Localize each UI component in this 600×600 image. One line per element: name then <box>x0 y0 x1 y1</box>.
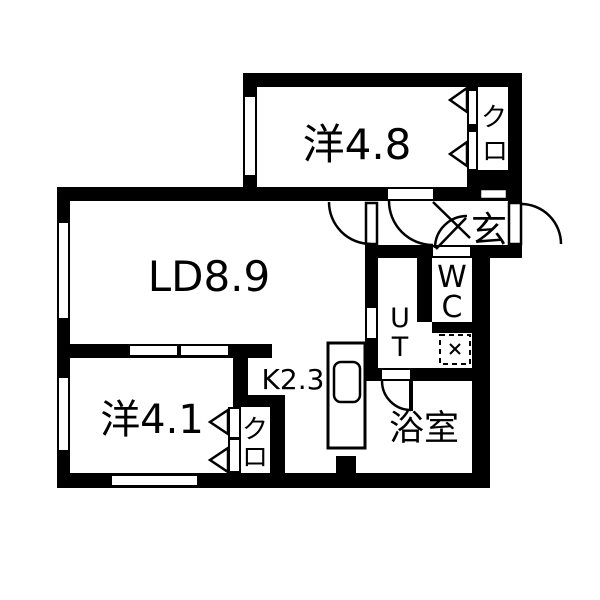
sliding-door-panel-left <box>130 346 177 355</box>
closet-bottom-arrow-lower-icon <box>210 448 228 472</box>
label-western-room-bottom: 洋4.1 <box>100 397 204 443</box>
closet-top-door-panel-a <box>469 91 476 124</box>
wall-counter-stub <box>336 456 356 474</box>
window-ld-left <box>59 223 68 318</box>
wall-closet-top-bottom <box>467 170 508 187</box>
label-closet-bottom-ku: ク <box>242 415 268 445</box>
entrance-door-leaf <box>509 203 521 244</box>
label-bathroom: 浴室 <box>389 409 459 449</box>
jamb-yo48-door-top <box>388 187 433 189</box>
kitchen-sink <box>334 362 360 402</box>
bath-door-leaf <box>409 381 413 411</box>
wall-ut-wc <box>417 258 432 322</box>
window-yo48-left <box>245 97 255 175</box>
ld-door-arc <box>329 202 371 244</box>
label-utility-u: U <box>390 303 410 334</box>
ld-door-leaf <box>366 203 377 244</box>
closet-bottom-door-panel-a <box>230 409 239 437</box>
window-yo41-left <box>59 378 68 450</box>
wall-top <box>243 73 522 87</box>
jamb-bath-door-bottom <box>382 379 410 381</box>
wall-right-upper <box>508 73 522 202</box>
sliding-door-panel-right <box>181 346 228 355</box>
wall-right-lower <box>472 258 490 488</box>
label-entrance: 玄 <box>471 210 507 251</box>
label-closet-bottom-ro: ロ <box>242 443 268 473</box>
entrance-cabinet <box>480 189 507 199</box>
wall-hall-top-right <box>433 187 522 201</box>
wall-kitchen-closet <box>233 358 248 398</box>
wall-hall-bottom-left <box>365 245 433 258</box>
label-closet-top-ku: ク <box>481 103 507 133</box>
bath-door-arc <box>382 381 411 410</box>
opening-kitchen-ut <box>367 308 376 338</box>
label-living-dining: LD8.9 <box>148 252 271 301</box>
jamb-wc-door-bottom <box>433 256 470 258</box>
wall-closet-bottom-top <box>233 395 285 407</box>
label-closet-top-ro: ロ <box>482 137 508 167</box>
wall-closet-bottom-right <box>270 407 285 473</box>
jamb-bath-door-top <box>382 368 410 370</box>
room-labels: 洋4.8 LD8.9 洋4.1 K2.3 玄 浴室 W C U T ク ロ ク … <box>100 103 508 473</box>
label-kitchen: K2.3 <box>262 363 325 396</box>
closet-top-door-panel-b <box>469 132 476 169</box>
wc-door-leaf-line <box>436 218 466 249</box>
closet-top-arrow-lower-icon <box>450 142 467 166</box>
wall-hall-top-left <box>57 187 388 201</box>
closet-bottom-arrow-upper-icon <box>210 410 228 434</box>
label-utility-t: T <box>391 332 409 363</box>
closet-top-arrow-upper-icon <box>450 88 467 112</box>
yo48-door-arc <box>389 201 433 245</box>
jamb-yo48-door-bottom <box>388 199 433 201</box>
window-yo41-bottom <box>112 476 197 485</box>
floor-plan-canvas: 洋4.8 LD8.9 洋4.1 K2.3 玄 浴室 W C U T ク ロ ク … <box>0 0 600 600</box>
label-western-room-top: 洋4.8 <box>303 120 412 169</box>
entrance-door-arc <box>521 204 561 244</box>
floor-plan: 洋4.8 LD8.9 洋4.1 K2.3 玄 浴室 W C U T ク ロ ク … <box>0 0 600 600</box>
label-toilet-c: C <box>442 290 463 325</box>
closet-bottom-door-panel-b <box>230 440 239 471</box>
